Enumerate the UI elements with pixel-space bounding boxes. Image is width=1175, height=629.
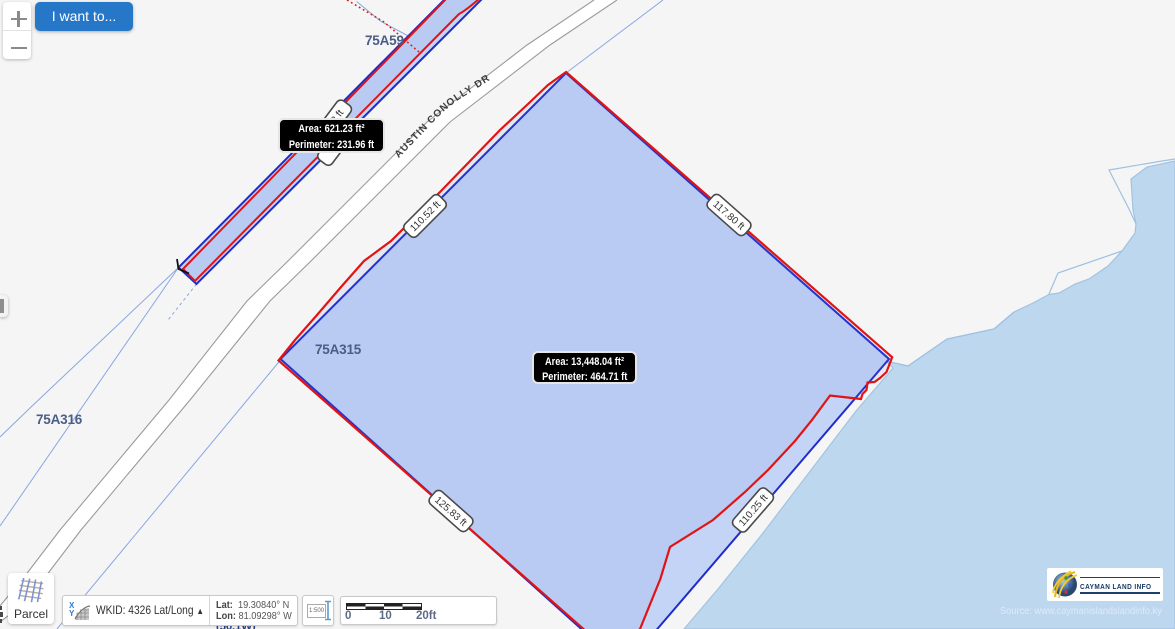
svg-text:Y: Y [69, 609, 75, 618]
svg-text:AUSTIN CONOLLY DR: AUSTIN CONOLLY DR [393, 73, 493, 161]
